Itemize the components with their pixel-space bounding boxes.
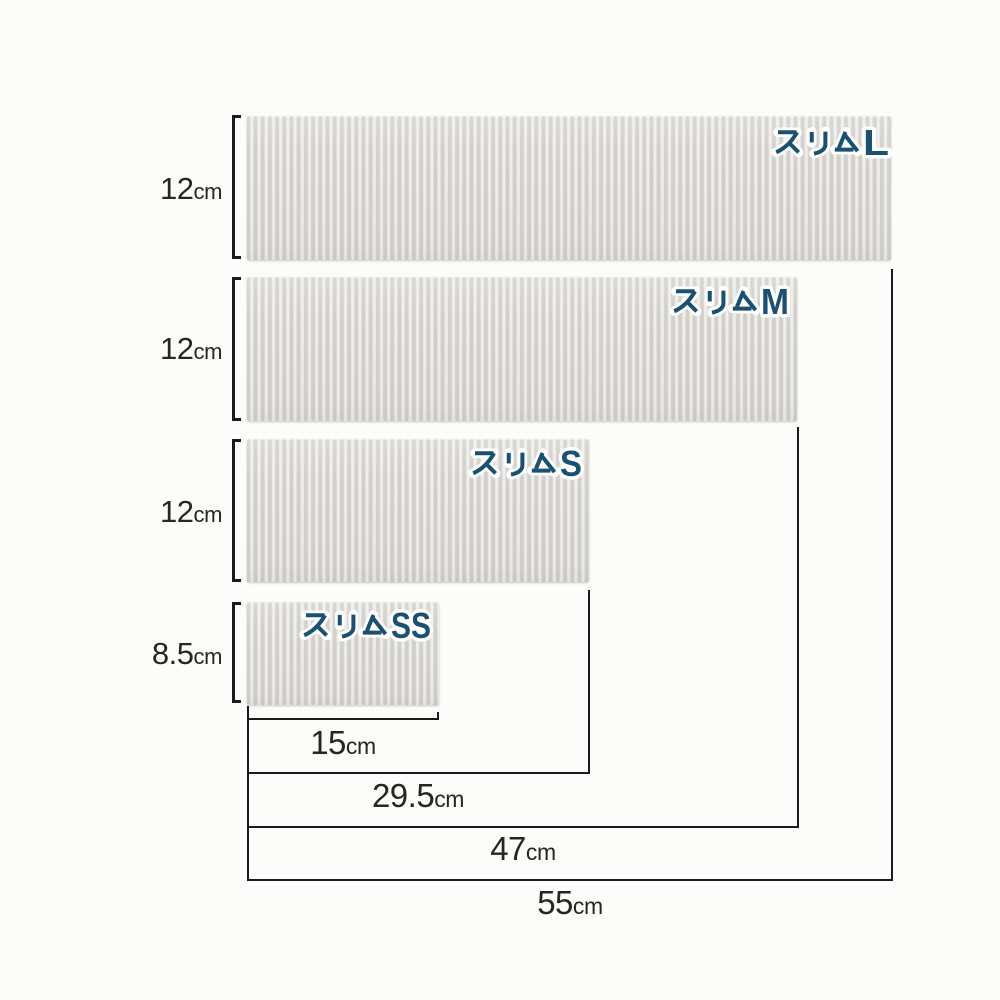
svg-text:M: M <box>761 281 789 322</box>
svg-text:S: S <box>560 443 582 484</box>
svg-text:SS: SS <box>391 605 431 646</box>
svg-text:L: L <box>863 122 889 163</box>
